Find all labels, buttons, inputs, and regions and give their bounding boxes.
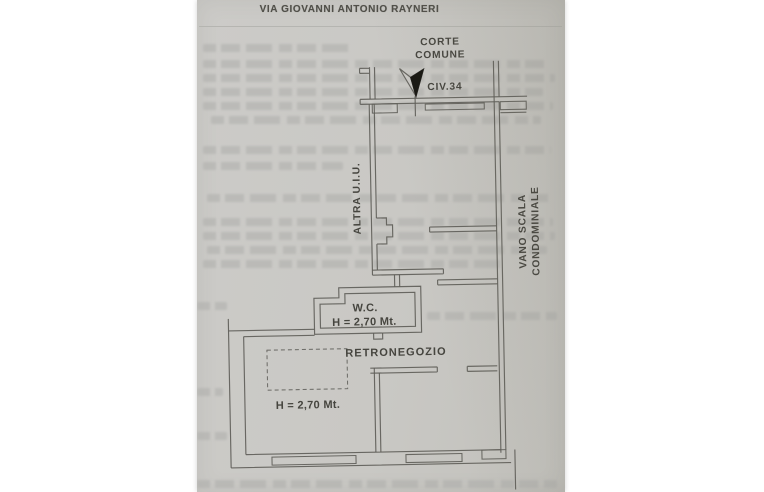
stairwell-label: VANO SCALA CONDOMINIALE xyxy=(517,186,543,276)
entrance-arrow-icon xyxy=(400,68,425,116)
dashed-area-outline xyxy=(267,349,348,391)
scanned-floor-plan-page: DISTACCO VERSO VIA GIOVANNI ANTONIO RAYN… xyxy=(197,0,565,492)
courtyard-label-line2: COMUNE xyxy=(415,49,465,61)
adjacent-unit-label: ALTRA U.I.U. xyxy=(351,162,363,234)
stairwell-label-line1: VANO SCALA xyxy=(517,194,529,269)
wc-room-label: W.C. xyxy=(352,302,377,314)
courtyard-label-line1: CORTE xyxy=(420,36,460,48)
civic-number-label: CIV.34 xyxy=(427,81,462,93)
plan-walls xyxy=(223,60,534,492)
wc-height-label: H = 2,70 Mt. xyxy=(332,316,397,329)
floor-plan-drawing: CORTE COMUNE CIV.34 ALTRA U.I.U. VANO SC… xyxy=(197,0,565,492)
header-clipped-line: DISTACCO VERSO xyxy=(302,0,502,2)
header-divider-line xyxy=(199,26,562,27)
backroom-label: RETRONEGOZIO xyxy=(345,346,446,360)
header-street-name: VIA GIOVANNI ANTONIO RAYNERI xyxy=(197,4,502,15)
stairwell-label-line2: CONDOMINIALE xyxy=(530,186,543,276)
backroom-height-label: H = 2,70 Mt. xyxy=(276,399,341,412)
screenshot-root: DISTACCO VERSO VIA GIOVANNI ANTONIO RAYN… xyxy=(0,0,764,492)
